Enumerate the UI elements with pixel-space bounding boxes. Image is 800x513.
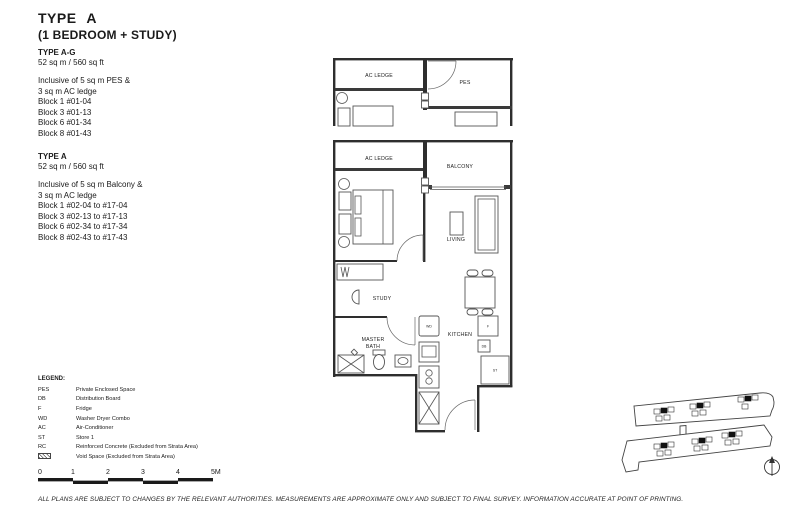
main-unit-plan: AC LEDGE BALCONY MASTER BEDROOM LIVING S… <box>333 140 513 432</box>
legend-row: WD Washer Dryer Combo <box>38 414 288 424</box>
legend-label: Void Space (Excluded from Strata Area) <box>76 454 175 460</box>
scale-bar: 0 1 2 3 4 5M <box>36 466 246 488</box>
legend-label: Store 1 <box>76 435 94 441</box>
legend-abbr: WD <box>38 416 76 422</box>
legend-title: LEGEND: <box>38 376 288 382</box>
nightstand <box>339 192 351 210</box>
scale-tick: 5M <box>211 469 221 476</box>
legend-abbr: ST <box>38 435 76 441</box>
kitchen-hob <box>419 366 439 388</box>
site-key-plan <box>602 390 794 496</box>
scale-tick: 1 <box>71 469 75 476</box>
legend-abbr: DB <box>38 396 76 402</box>
legend-label: Washer Dryer Combo <box>76 416 130 422</box>
inclusive-line: 3 sq m AC ledge <box>38 191 143 202</box>
legend-row: ST Store 1 <box>38 433 288 443</box>
dining-chair <box>482 270 493 276</box>
dining-table <box>465 277 495 308</box>
room-label-kitchen: KITCHEN <box>448 332 472 338</box>
room-label-ac-ledge-upper: AC LEDGE <box>365 73 393 79</box>
ac-unit <box>339 237 350 248</box>
inclusive-line: Inclusive of 5 sq m Balcony & <box>38 180 143 191</box>
room-label-ac-ledge: AC LEDGE <box>365 156 393 162</box>
block-line: Block 6 #02-34 to #17-34 <box>38 222 143 233</box>
ac-unit <box>339 179 350 190</box>
legend-label: Reinforced Concrete (Excluded from Strat… <box>76 444 198 450</box>
block-line: Block 8 #02-43 to #17-43 <box>38 233 143 244</box>
dining-chair <box>482 309 493 315</box>
scale-segment <box>73 481 108 484</box>
variant-type-a: TYPE A 52 sq m / 560 sq ft Inclusive of … <box>38 152 143 243</box>
block-line: Block 3 #01-13 <box>38 108 130 119</box>
washer-dryer-label: WD <box>426 325 432 329</box>
floor-plan-drawing: AC LEDGE PES <box>325 50 520 462</box>
inclusive-line: 3 sq m AC ledge <box>38 87 130 98</box>
legend-row: F Fridge <box>38 404 288 414</box>
scale-tick: 0 <box>38 469 42 476</box>
legend-label: Air-Conditioner <box>76 425 113 431</box>
bedroom-door-arc <box>397 235 423 261</box>
variant-name: TYPE A-G <box>38 48 130 57</box>
variant-type-a-g: TYPE A-G 52 sq m / 560 sq ft Inclusive o… <box>38 48 130 139</box>
entry-door-arc <box>445 400 475 430</box>
page-title: TYPE A <box>38 10 308 26</box>
legend-abbr: PES <box>38 387 76 393</box>
distribution-board-label: DB <box>482 345 487 349</box>
bath-sink <box>395 355 411 367</box>
legend: LEGEND: PES Private Enclosed Space DB Di… <box>38 376 288 462</box>
variant-area: 52 sq m / 560 sq ft <box>38 162 143 171</box>
legend-row: AC Air-Conditioner <box>38 423 288 433</box>
store-label: ST <box>493 369 497 373</box>
legend-row: Void Space (Excluded from Strata Area) <box>38 452 288 462</box>
sofa <box>475 196 498 253</box>
scale-tick: 4 <box>176 469 180 476</box>
legend-abbr: RC <box>38 444 76 450</box>
north-arrow-icon <box>765 456 780 476</box>
coffee-table <box>450 212 463 235</box>
variant-name: TYPE A <box>38 152 143 161</box>
upper-unit-fragment: AC LEDGE PES <box>333 58 513 126</box>
legend-abbr: AC <box>38 425 76 431</box>
pes-door-arc <box>428 61 456 89</box>
nightstand <box>339 214 351 234</box>
room-label-pes: PES <box>460 80 471 86</box>
variant-blocks: Block 1 #01-04 Block 3 #01-13 Block 6 #0… <box>38 97 130 139</box>
room-label-master-bath: MASTER <box>362 337 385 343</box>
block-line: Block 8 #01-43 <box>38 129 130 140</box>
room-label-living: LIVING <box>447 237 465 243</box>
legend-row: PES Private Enclosed Space <box>38 385 288 395</box>
page-subtitle: (1 BEDROOM + STUDY) <box>38 28 308 42</box>
scale-tick: 2 <box>106 469 110 476</box>
legend-label: Private Enclosed Space <box>76 387 135 393</box>
variant-blocks: Block 1 #02-04 to #17-04 Block 3 #02-13 … <box>38 201 143 243</box>
floor-plan-brochure-page: TYPE A (1 BEDROOM + STUDY) TYPE A-G 52 s… <box>0 0 800 513</box>
block-line: Block 6 #01-34 <box>38 118 130 129</box>
block-line: Block 3 #02-13 to #17-13 <box>38 212 143 223</box>
bath-door-arc <box>387 317 415 345</box>
room-label-study: STUDY <box>373 296 392 302</box>
fridge-label: F <box>487 325 489 329</box>
legend-label: Fridge <box>76 406 92 412</box>
void-space-hatch-icon <box>38 453 51 459</box>
room-label-master-bath: BATH <box>366 344 380 350</box>
inclusive-line: Inclusive of 5 sq m PES & <box>38 76 130 87</box>
variant-area: 52 sq m / 560 sq ft <box>38 58 130 67</box>
scale-segment <box>143 481 178 484</box>
legend-row: RC Reinforced Concrete (Excluded from St… <box>38 443 288 453</box>
study-chair <box>352 290 359 304</box>
toilet <box>374 355 385 370</box>
legend-abbr: F <box>38 406 76 412</box>
variant-inclusive: Inclusive of 5 sq m Balcony & 3 sq m AC … <box>38 180 143 201</box>
disclaimer-text: ALL PLANS ARE SUBJECT TO CHANGES BY THE … <box>38 496 783 503</box>
scale-tick: 3 <box>141 469 145 476</box>
legend-abbr-void <box>38 453 76 461</box>
block-line: Block 1 #01-04 <box>38 97 130 108</box>
dining-chair <box>467 309 478 315</box>
scale-segment <box>108 478 143 481</box>
info-column: TYPE A (1 BEDROOM + STUDY) TYPE A-G 52 s… <box>38 10 308 42</box>
scale-segment <box>38 478 73 481</box>
legend-row: DB Distribution Board <box>38 395 288 405</box>
scale-segment <box>178 478 213 481</box>
room-label-balcony: BALCONY <box>447 164 474 170</box>
dining-chair <box>467 270 478 276</box>
block-line: Block 1 #02-04 to #17-04 <box>38 201 143 212</box>
legend-label: Distribution Board <box>76 396 120 402</box>
variant-inclusive: Inclusive of 5 sq m PES & 3 sq m AC ledg… <box>38 76 130 97</box>
